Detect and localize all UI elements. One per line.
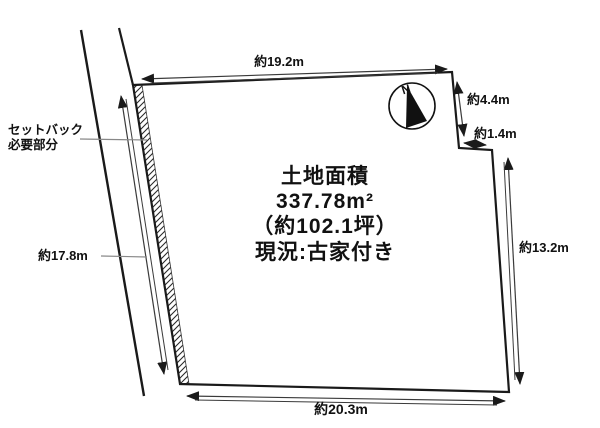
setback-label-line2: 必要部分 — [8, 138, 83, 153]
setback-hatch-area — [133, 85, 189, 384]
boundary-extension-line — [119, 28, 133, 85]
area-info-m2: 337.78m² — [252, 189, 398, 214]
area-info-title: 土地面積 — [252, 164, 398, 189]
left-dim-leader-line — [101, 256, 147, 257]
setback-label-line1: セットバック — [8, 123, 83, 138]
area-info: 土地面積 337.78m² （約102.1坪） 現況:古家付き — [252, 164, 398, 265]
dimension-right-notch — [464, 143, 486, 145]
dim-label-right: 約13.2m — [519, 241, 569, 255]
dimension-top — [142, 69, 447, 83]
area-info-status: 現況:古家付き — [252, 240, 398, 265]
dim-label-right-notch: 約1.4m — [474, 127, 517, 141]
dim-label-bottom: 約20.3m — [314, 402, 368, 417]
dim-label-right-upper: 約4.4m — [467, 93, 510, 107]
setback-leader-line — [80, 139, 147, 140]
dim-label-top: 約19.2m — [254, 55, 304, 69]
plot-diagram: N 約19.2m 約4.4m 約1.4m 約13.2m 約20.3m 約17.8… — [0, 0, 600, 428]
area-info-tsubo: （約102.1坪） — [252, 214, 398, 239]
compass: N — [389, 81, 435, 129]
dim-label-left: 約17.8m — [38, 249, 88, 263]
setback-label: セットバック 必要部分 — [8, 123, 83, 153]
